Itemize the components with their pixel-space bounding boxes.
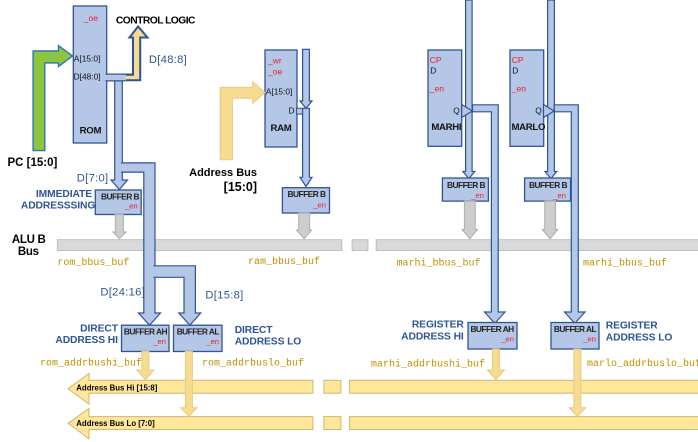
svg-text:rom_addrbushi_buf: rom_addrbushi_buf: [40, 358, 142, 370]
svg-text:ADDRESS HI: ADDRESS HI: [401, 332, 464, 343]
svg-text:CP: CP: [430, 55, 442, 65]
svg-text:RAM: RAM: [271, 123, 292, 134]
svg-text:BUFFER AL: BUFFER AL: [554, 324, 597, 334]
svg-text:MARLO: MARLO: [511, 122, 546, 133]
svg-text:D[24:16]: D[24:16]: [100, 287, 145, 299]
svg-text:Address Bus Hi [15:8]: Address Bus Hi [15:8]: [76, 384, 157, 393]
svg-text:BUFFER B: BUFFER B: [288, 189, 326, 199]
svg-text:D[7:0]: D[7:0]: [77, 172, 109, 184]
svg-text:BUFFER AL: BUFFER AL: [177, 327, 220, 337]
svg-text:D: D: [512, 66, 518, 76]
svg-text:Q: Q: [535, 106, 542, 116]
svg-text:D[48:8]: D[48:8]: [149, 54, 187, 66]
svg-text:_oe: _oe: [83, 13, 98, 23]
svg-text:DIRECT: DIRECT: [235, 325, 274, 336]
svg-text:_en: _en: [152, 337, 166, 346]
svg-text:_wr: _wr: [267, 56, 282, 66]
svg-text:ADDRESS LO: ADDRESS LO: [606, 333, 673, 344]
svg-text:marhi_addrbushi_buf: marhi_addrbushi_buf: [371, 359, 485, 371]
svg-text:marhi_bbus_buf: marhi_bbus_buf: [583, 258, 667, 270]
svg-text:ram_bbus_buf: ram_bbus_buf: [248, 256, 320, 268]
svg-text:Address Bus Lo [7:0]: Address Bus Lo [7:0]: [76, 419, 155, 428]
svg-text:_en: _en: [124, 202, 138, 211]
svg-text:ADDRESS LO: ADDRESS LO: [235, 337, 302, 348]
svg-text:[15:0]: [15:0]: [224, 180, 257, 194]
svg-text:_en: _en: [312, 201, 326, 210]
svg-text:ALU B: ALU B: [12, 234, 46, 246]
svg-text:REGISTER: REGISTER: [412, 320, 464, 331]
svg-text:CP: CP: [512, 55, 524, 65]
svg-text:BUFFER B: BUFFER B: [101, 191, 139, 201]
svg-text:ADDRESS HI: ADDRESS HI: [55, 335, 118, 346]
svg-text:D[48:0]: D[48:0]: [74, 71, 101, 81]
svg-text:_en: _en: [582, 335, 596, 344]
svg-text:_en: _en: [205, 337, 219, 346]
svg-text:A[15:0]: A[15:0]: [74, 54, 101, 64]
svg-text:D: D: [288, 106, 294, 116]
svg-text:MARHI: MARHI: [431, 122, 462, 133]
svg-text:_en: _en: [511, 84, 526, 94]
svg-text:_en: _en: [552, 191, 566, 200]
svg-text:PC [15:0]: PC [15:0]: [8, 157, 58, 169]
svg-text:_en: _en: [429, 84, 444, 94]
svg-text:Address Bus: Address Bus: [189, 167, 257, 179]
svg-text:marhi_bbus_buf: marhi_bbus_buf: [397, 258, 481, 270]
svg-text:ADDRESSSING: ADDRESSSING: [21, 200, 96, 211]
svg-text:_en: _en: [470, 191, 484, 200]
svg-text:BUFFER B: BUFFER B: [447, 180, 485, 190]
svg-text:REGISTER: REGISTER: [606, 321, 658, 332]
svg-text:_oe: _oe: [267, 66, 282, 76]
svg-text:Bus: Bus: [18, 246, 39, 258]
svg-text:IMMEDIATE: IMMEDIATE: [36, 189, 92, 200]
svg-text:ROM: ROM: [80, 125, 102, 136]
svg-text:_en: _en: [500, 335, 514, 344]
svg-text:CONTROL LOGIC: CONTROL LOGIC: [116, 16, 196, 27]
svg-text:BUFFER AH: BUFFER AH: [124, 327, 168, 337]
svg-text:rom_bbus_buf: rom_bbus_buf: [57, 257, 129, 269]
svg-text:BUFFER AH: BUFFER AH: [470, 324, 514, 334]
svg-text:A[15:0]: A[15:0]: [266, 86, 293, 96]
svg-text:DIRECT: DIRECT: [80, 324, 119, 335]
svg-text:D: D: [430, 66, 436, 76]
svg-text:Q: Q: [453, 106, 460, 116]
svg-text:marlo_addrbuslo_buf: marlo_addrbuslo_buf: [587, 358, 698, 370]
svg-text:D[15:8]: D[15:8]: [205, 290, 243, 302]
svg-text:BUFFER B: BUFFER B: [529, 180, 567, 190]
svg-text:rom_addrbuslo_buf: rom_addrbuslo_buf: [202, 358, 304, 370]
